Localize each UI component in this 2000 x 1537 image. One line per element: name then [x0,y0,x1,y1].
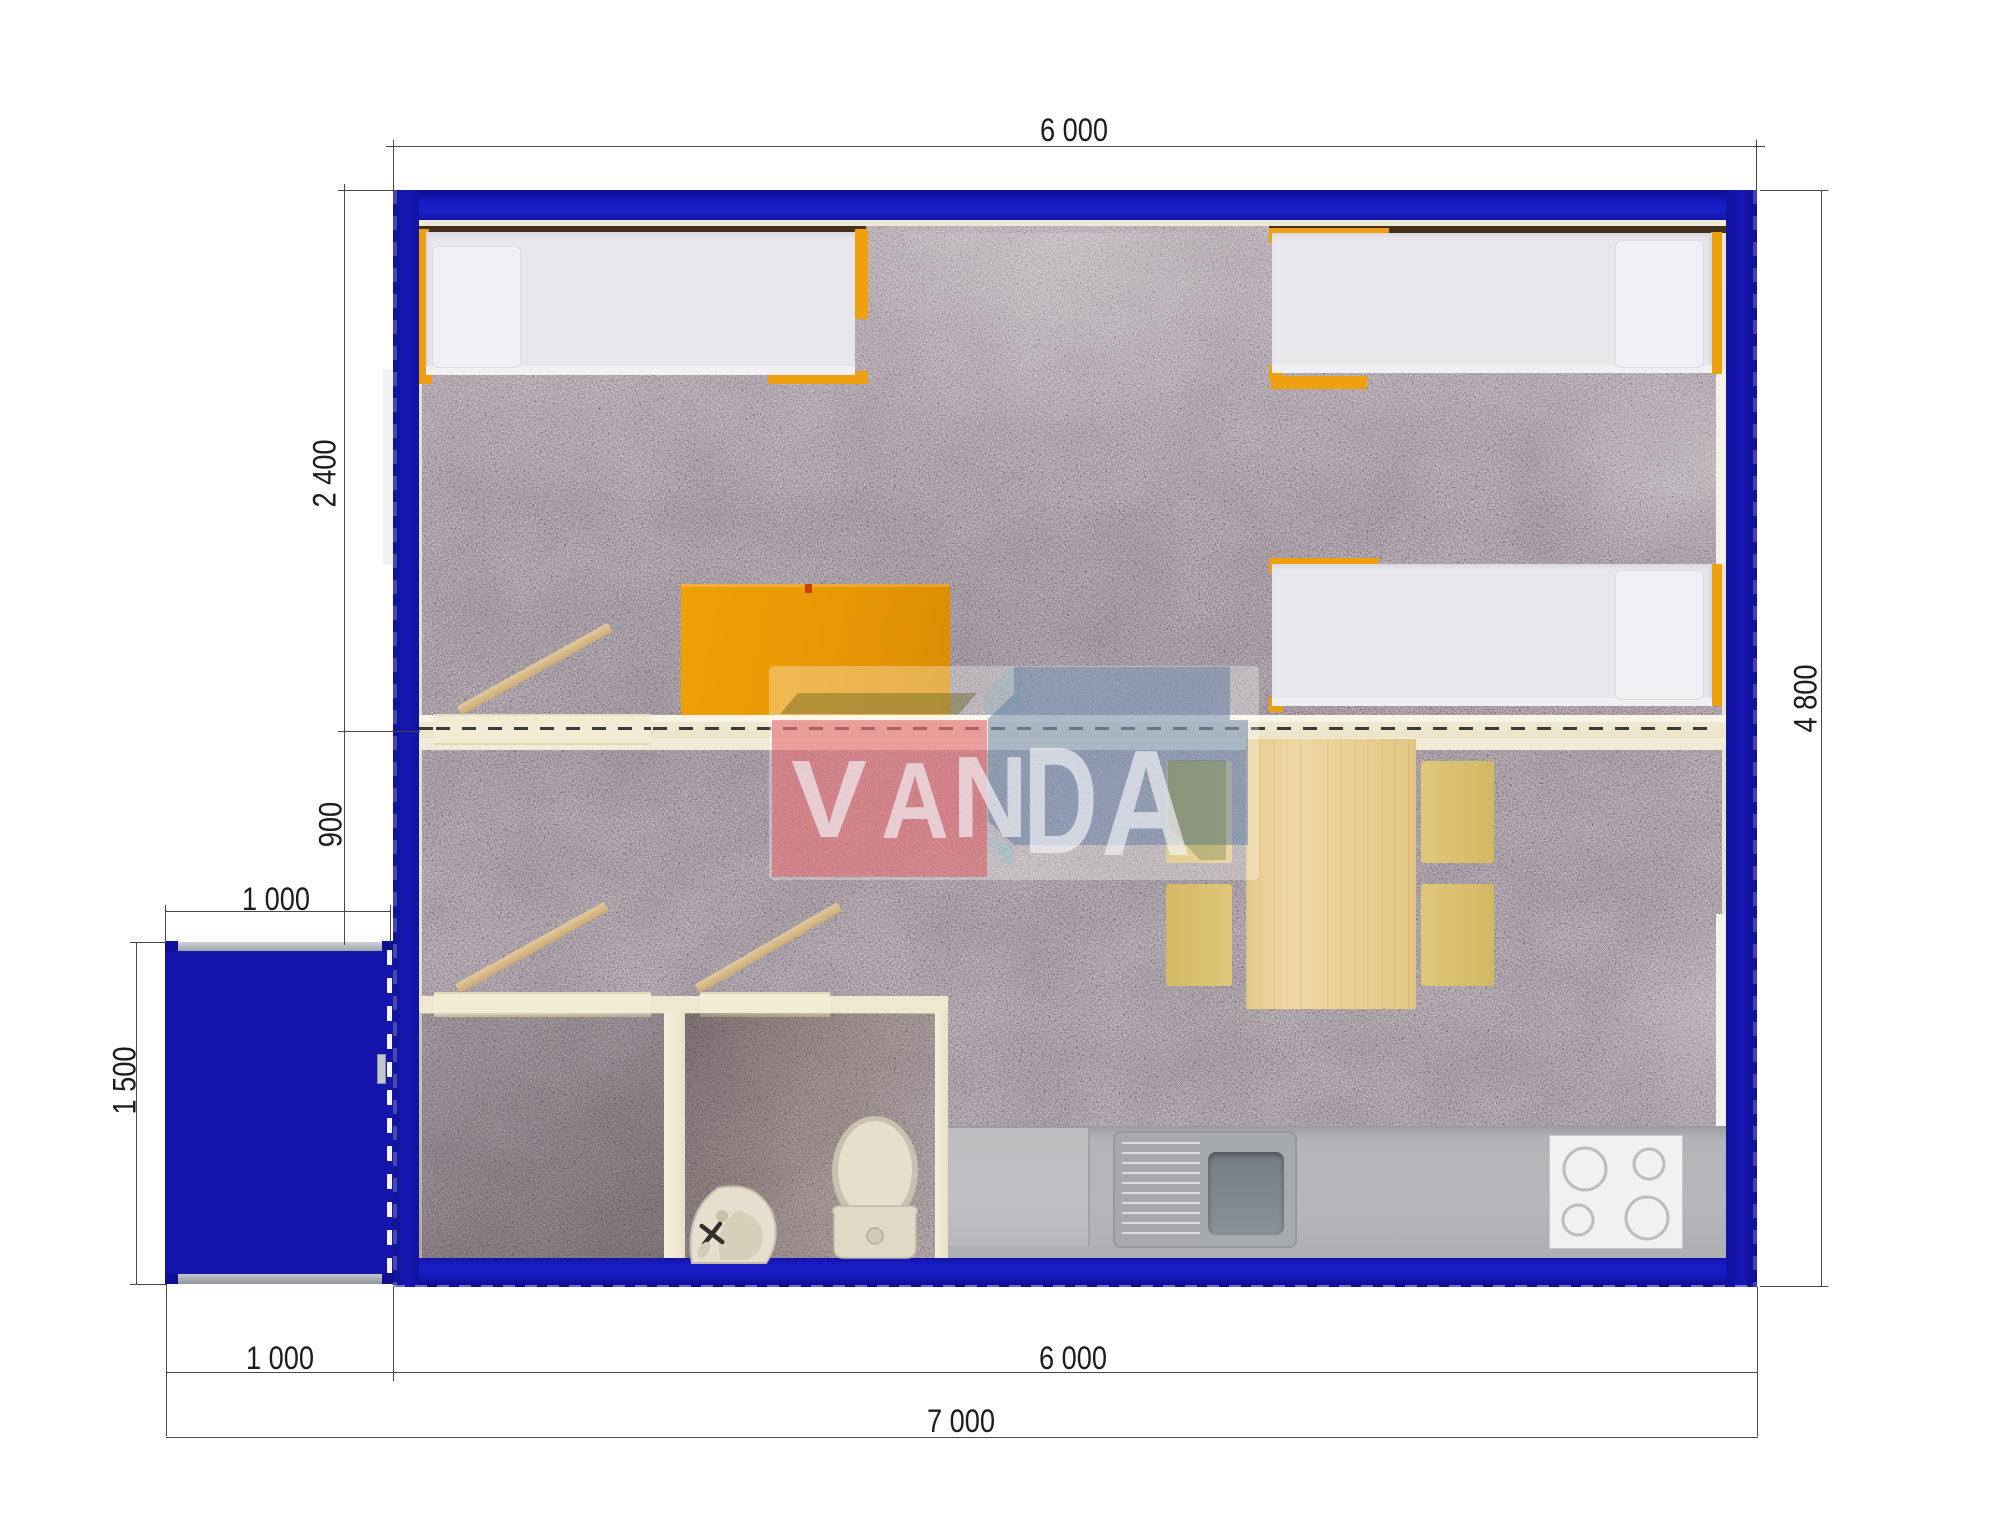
svg-text:A: A [881,740,949,862]
svg-text:V: V [791,738,867,861]
svg-text:D: D [1023,715,1098,880]
svg-text:N: N [952,732,1028,862]
svg-text:A: A [1101,718,1191,880]
